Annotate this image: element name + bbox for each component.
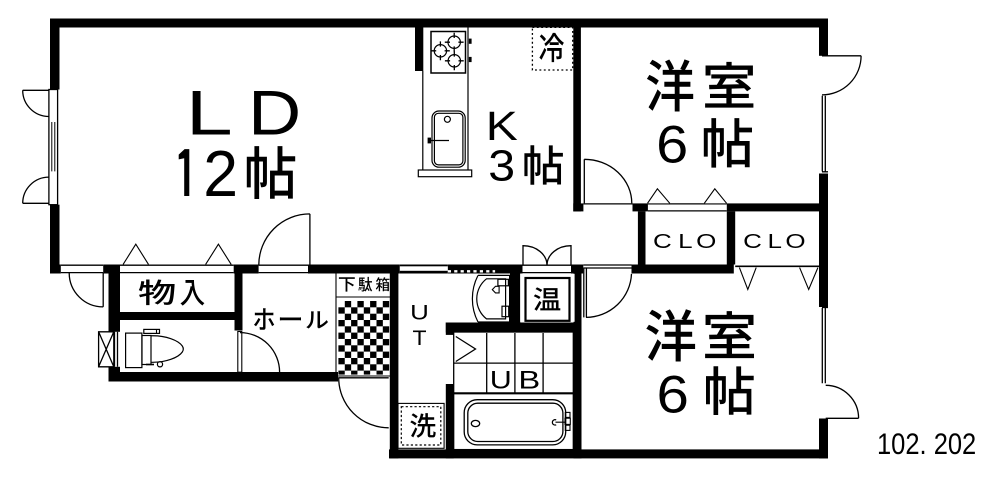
svg-text:U: U — [490, 366, 512, 394]
svg-text:C: C — [653, 230, 672, 252]
svg-text:L: L — [767, 230, 782, 252]
svg-text:2: 2 — [203, 138, 238, 210]
svg-text:L: L — [678, 230, 693, 252]
svg-text:3: 3 — [488, 141, 515, 190]
svg-text:B: B — [518, 367, 540, 395]
svg-text:102. 202: 102. 202 — [877, 427, 976, 460]
svg-text:T: T — [412, 326, 426, 350]
svg-text:O: O — [785, 230, 805, 252]
svg-text:C: C — [743, 230, 762, 252]
svg-text:U: U — [410, 301, 429, 324]
svg-text:6: 6 — [656, 115, 688, 174]
svg-text:6: 6 — [656, 365, 688, 424]
svg-text:D: D — [248, 78, 301, 149]
svg-text:O: O — [696, 230, 716, 252]
